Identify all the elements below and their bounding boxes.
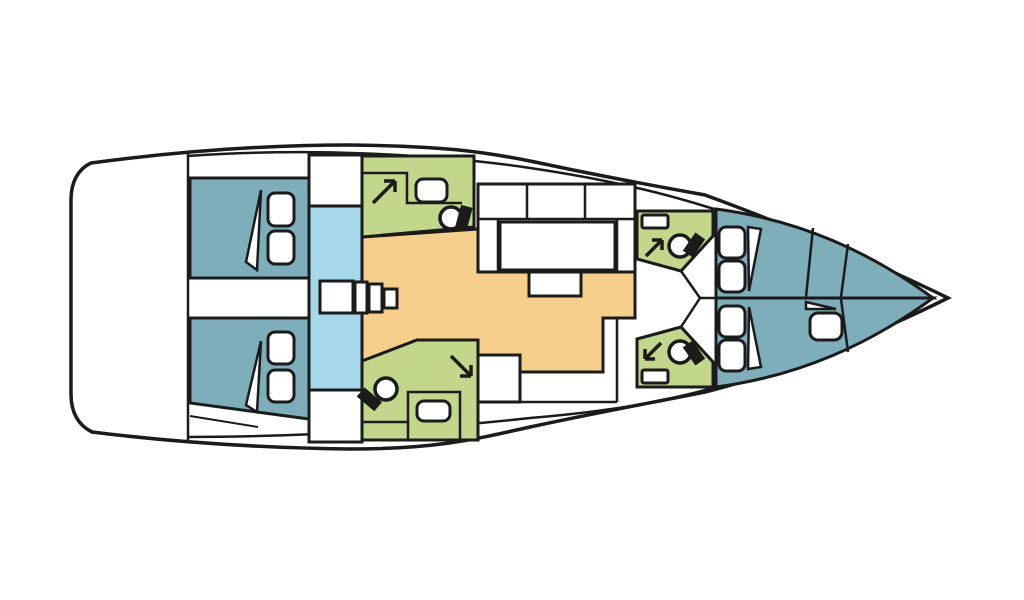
plan (71, 145, 948, 449)
pillow (810, 313, 842, 340)
dinette-bench-seat (529, 272, 581, 296)
pillow (268, 193, 294, 226)
companionway-bottom-locker (309, 390, 362, 442)
shower-stall-box (478, 355, 520, 402)
step (369, 284, 382, 312)
boat-floorplan (0, 0, 1024, 600)
sink (642, 370, 668, 383)
aft-cabin-port (190, 178, 309, 278)
pillow (719, 227, 745, 258)
sink (416, 179, 447, 202)
aft-head-port (362, 156, 474, 237)
dinette-table (500, 222, 615, 270)
pillow (719, 340, 745, 371)
fwd-cabin-starboard (716, 298, 933, 387)
pillow (719, 306, 745, 337)
sink (417, 401, 450, 421)
pillow (719, 261, 745, 292)
pillow (268, 370, 294, 402)
companionway-top-locker (309, 155, 362, 206)
boat-floorplan-canvas (0, 0, 1024, 600)
pillow (268, 332, 294, 364)
step (320, 281, 353, 313)
step (384, 289, 397, 308)
step (355, 282, 367, 313)
pillow (268, 231, 294, 264)
fwd-cabin-port (716, 209, 933, 298)
aft-head-starboard (357, 340, 478, 440)
sink (642, 215, 668, 228)
